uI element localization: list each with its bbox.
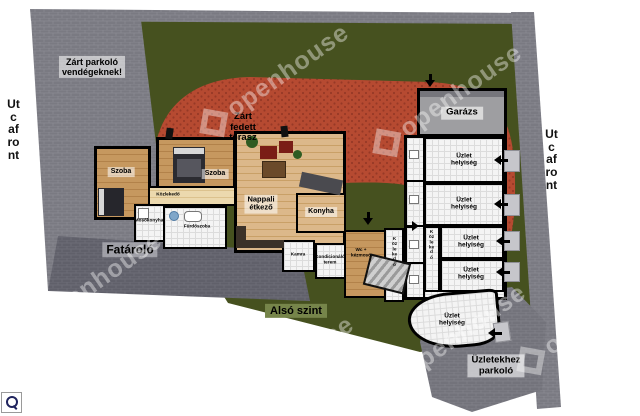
sink-icon <box>409 240 419 249</box>
dining-table <box>262 161 286 178</box>
shop-unit-4-label: Üzlet helyiség <box>458 267 484 282</box>
bed-2 <box>173 147 205 183</box>
shop-unit-3-label: Üzlet helyiség <box>458 235 484 250</box>
wc-fixture-icon-3 <box>409 275 419 284</box>
shop-unit-1-label: Üzlet helyiség <box>451 153 477 168</box>
bed-2-blanket <box>177 159 201 177</box>
shops-corridor-label: Közlekedő <box>429 230 435 261</box>
entrance-arrow-icon <box>489 199 508 209</box>
bed-2-pillow <box>174 148 204 154</box>
kitchen-label: Konyha <box>305 207 337 217</box>
entrance-arrow-icon <box>491 267 510 277</box>
sofa-red-2 <box>279 141 293 153</box>
terrace-entry-marker <box>280 126 288 138</box>
entrance-arrow-icon <box>405 221 424 231</box>
wc-fixture-icon <box>409 150 419 159</box>
bathtub-icon <box>184 211 202 222</box>
entrance-arrow-icon <box>491 236 510 246</box>
entrance-arrow-down-icon <box>363 212 373 230</box>
bed-1-pillow <box>99 189 104 215</box>
entrance-arrow-down-icon <box>425 74 435 92</box>
corridor-label: Közlekedő <box>392 237 398 268</box>
wc-fixture-icon-2 <box>409 195 419 204</box>
counter-l-horizontal <box>236 240 284 248</box>
entrance-arrow-icon <box>483 328 502 338</box>
sofa-red-1 <box>260 146 277 159</box>
floor-plan-image: Utcafront Utcafront Zárt parkoló vendége… <box>0 0 640 416</box>
wood-storage-label: Fatároló <box>102 242 157 257</box>
fitness-room-label: Kondicionáló terem <box>315 255 345 265</box>
guest-parking-label: Zárt parkoló vendégeknek! <box>59 56 125 78</box>
entrance-arrow-icon <box>489 155 508 165</box>
garage-label: Garázs <box>441 107 483 120</box>
living-dining-label: Nappali étkező <box>244 195 277 214</box>
shops-parking-label: Üzletekhez parkoló <box>467 354 524 377</box>
bedroom-2-label: Szoba <box>202 169 229 179</box>
wall-divider <box>404 180 425 182</box>
wc-label: Wc + kézmosó <box>351 248 371 258</box>
street-front-label-left: Utcafront <box>7 98 20 162</box>
shower-icon <box>169 211 179 221</box>
street-front-label-right: Utcafront <box>545 128 558 192</box>
bathroom-label: Fürdőszoba <box>184 224 211 229</box>
level-label: Alsó szint <box>265 304 327 318</box>
shop-unit-2-label: Üzlet helyiség <box>451 197 477 212</box>
bedroom-1-label: Szoba <box>108 167 135 177</box>
utility-label: Mosókonyha <box>135 218 164 223</box>
bed-1 <box>98 188 124 216</box>
terrace-label: Zárt fedett terasz <box>229 112 256 144</box>
shop-unit-5-label: Üzlet helyiség <box>439 313 465 328</box>
hallway-label: Közlekedő <box>156 192 179 197</box>
plant-icon-2 <box>293 150 302 159</box>
pantry-label: Kamra <box>291 252 306 257</box>
zoom-button[interactable] <box>1 392 22 413</box>
washer-icon <box>138 208 149 219</box>
